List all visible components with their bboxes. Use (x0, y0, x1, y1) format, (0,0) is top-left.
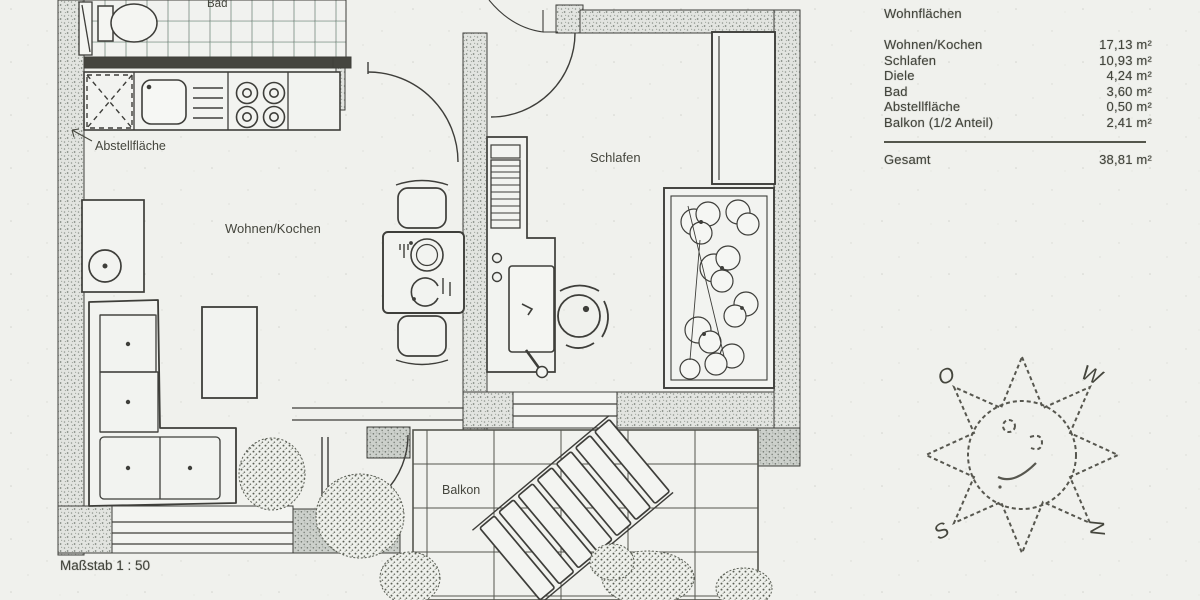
room-area: 0,50 m² (1107, 99, 1152, 115)
bush-left (316, 474, 404, 558)
room-area: 2,41 m² (1107, 115, 1152, 131)
table-row: Schlafen 10,93 m² (884, 53, 1152, 69)
wall-pier-living-left (58, 506, 112, 553)
wall-pier-schlafen-left (463, 392, 513, 428)
dining-table (383, 232, 464, 313)
room-area: 10,93 m² (1099, 53, 1152, 69)
room-name: Bad (884, 84, 908, 100)
wall-schlafen-bottom (617, 392, 774, 428)
room-name: Schlafen (884, 53, 936, 69)
dining-chair-top (398, 188, 446, 228)
table-row: Abstellfläche 0,50 m² (884, 99, 1152, 115)
room-name: Diele (884, 68, 915, 84)
table-row: Wohnen/Kochen 17,13 m² (884, 37, 1152, 53)
wall-stub-top (333, 57, 351, 68)
table-row: Diele 4,24 m² (884, 68, 1152, 84)
room-label-bad: Bad (207, 0, 227, 10)
room-name: Wohnen/Kochen (884, 37, 983, 53)
wall-balcony-stub (367, 427, 410, 458)
room-name: Abstellfläche (884, 99, 960, 115)
table-total-row: Gesamt 38,81 m² (884, 152, 1152, 168)
area-table-title: Wohnflächen (884, 6, 1152, 21)
bed (712, 32, 775, 184)
total-value: 38,81 m² (1099, 152, 1152, 168)
table-row: Bad 3,60 m² (884, 84, 1152, 100)
room-label-balkon: Balkon (442, 483, 480, 497)
wall-bath-bottom (84, 57, 346, 68)
area-table: Wohnflächen Wohnen/Kochen 17,13 m² Schla… (884, 6, 1152, 168)
scanned-floorplan-page: Bad Abstellfläche Wohnen/Kochen Schlafen… (0, 0, 1200, 600)
plant-living (239, 438, 305, 510)
toilet (98, 4, 157, 42)
total-label: Gesamt (884, 152, 931, 168)
room-label-abstellflaeche: Abstellfläche (95, 139, 166, 153)
wall-top-step (556, 5, 583, 33)
tv-sideboard (82, 200, 144, 292)
room-label-schlafen: Schlafen (590, 150, 641, 165)
scale-label: Maßstab 1 : 50 (60, 558, 150, 573)
bush-bottom-middle-2 (590, 544, 634, 580)
flower-box (664, 188, 774, 388)
table-row: Balkon (1/2 Anteil) 2,41 m² (884, 115, 1152, 131)
window-living-south (112, 506, 293, 553)
table-divider (884, 141, 1146, 143)
room-name: Balkon (1/2 Anteil) (884, 115, 993, 131)
room-area: 4,24 m² (1107, 68, 1152, 84)
bathroom-door-leaf (79, 2, 92, 55)
wall-schlafen-top (580, 10, 776, 33)
wall-left (58, 0, 84, 555)
room-area: 17,13 m² (1099, 37, 1152, 53)
coffee-table (202, 307, 257, 398)
compass-letter-n: N (1084, 519, 1108, 537)
dining-chair-bottom (398, 316, 446, 356)
room-area: 3,60 m² (1107, 84, 1152, 100)
wall-central (463, 33, 487, 432)
wall-right (774, 10, 800, 456)
wall-step-bottom-right (757, 428, 800, 466)
room-label-wohnen-kochen: Wohnen/Kochen (225, 221, 321, 236)
kitchen-counter (84, 72, 340, 130)
